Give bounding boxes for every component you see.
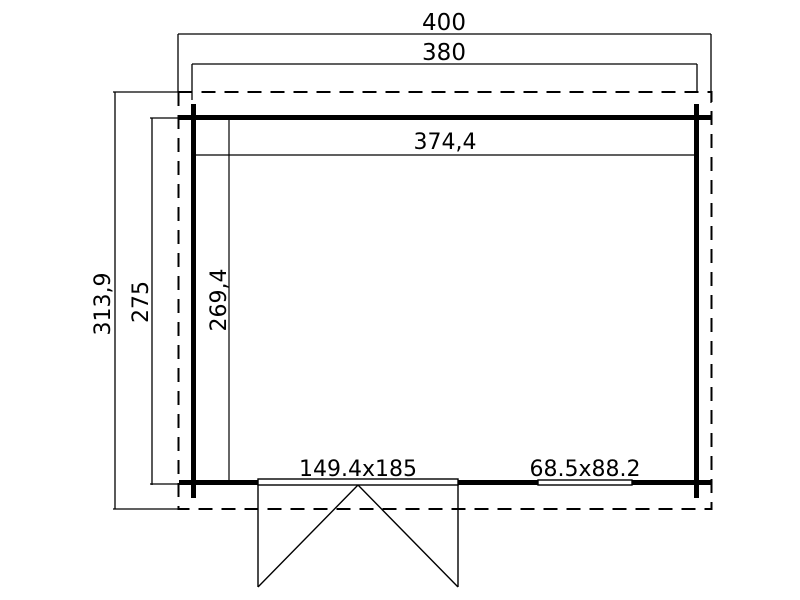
- floor-plan-canvas: 400 380 313,9 275: [0, 0, 800, 600]
- wall-width-label: 380: [422, 40, 466, 66]
- window-size-label: 68.5x88.2: [530, 457, 641, 482]
- wall-top: [179, 115, 711, 120]
- window: 68.5x88.2: [530, 457, 641, 485]
- floor-plan-drawing: 400 380 313,9 275: [0, 0, 800, 600]
- overall-width-label: 400: [422, 10, 466, 36]
- wall-bottom-right-segment: [632, 480, 711, 485]
- dimension-wall-depth: 275: [129, 118, 191, 485]
- walls: [179, 104, 711, 498]
- overall-depth-label: 313,9: [91, 273, 116, 336]
- dimension-interior-depth: 269,4: [207, 120, 232, 480]
- interior-depth-label: 269,4: [207, 269, 232, 332]
- wall-bottom-middle-segment: [458, 480, 538, 485]
- interior-width-label: 374,4: [414, 130, 477, 155]
- wall-bottom-left-segment: [179, 480, 258, 485]
- wall-left: [191, 104, 196, 498]
- wall-depth-label: 275: [129, 281, 154, 323]
- double-door: 149.4x185: [258, 457, 458, 587]
- door-leaf-left-swing: [258, 485, 358, 587]
- door-size-label: 149.4x185: [299, 457, 417, 482]
- wall-right: [694, 104, 699, 498]
- door-leaf-right-swing: [358, 485, 458, 587]
- dimension-interior-width: 374,4: [196, 130, 694, 155]
